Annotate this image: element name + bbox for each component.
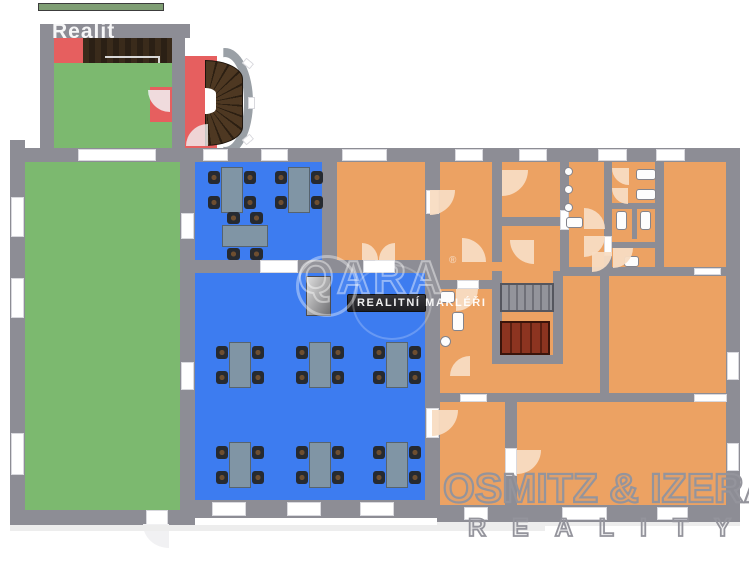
dining-table — [222, 212, 268, 260]
dining-table — [208, 167, 256, 213]
window — [519, 149, 547, 161]
window — [11, 278, 24, 318]
urinal — [564, 185, 573, 194]
urinal — [564, 203, 573, 212]
dining-table — [216, 342, 264, 388]
window — [657, 507, 688, 520]
hedge-strip — [38, 3, 164, 11]
interior-door — [505, 448, 517, 476]
window — [11, 197, 24, 237]
window — [727, 443, 739, 471]
interior-wall — [560, 267, 664, 276]
staircase-wood — [500, 321, 550, 355]
window — [342, 149, 387, 161]
window — [11, 433, 24, 475]
window — [464, 507, 488, 520]
window — [360, 502, 394, 516]
floorplan-canvas: Realit QARA ® REALITNÍ MAKLÉŘI OSMITZ & … — [0, 0, 749, 562]
interior-door — [181, 213, 194, 239]
window — [727, 352, 739, 380]
interior-wall — [492, 355, 563, 364]
toilet — [640, 211, 651, 230]
interior-opening — [694, 394, 727, 402]
terrace-wall-left — [40, 24, 54, 154]
dining-table — [296, 442, 344, 488]
interior-door — [260, 260, 298, 273]
wall-shadow — [437, 522, 740, 526]
window — [287, 502, 321, 516]
window — [78, 149, 156, 161]
window — [598, 149, 627, 161]
interior-door — [457, 280, 479, 289]
sink — [440, 336, 451, 347]
interior-wall — [600, 276, 609, 397]
toilet — [636, 189, 656, 200]
sink — [440, 291, 455, 303]
staircase-up — [500, 283, 554, 312]
spiral-core — [205, 88, 216, 114]
stall-divider — [632, 209, 637, 239]
terrace-wall-right — [172, 38, 185, 154]
dining-table — [296, 342, 344, 388]
room-green-hall — [25, 162, 180, 510]
window — [656, 149, 685, 161]
terrace-wall-top — [40, 24, 190, 38]
window — [261, 149, 288, 161]
dining-table — [373, 342, 421, 388]
dining-table — [373, 442, 421, 488]
qara-logo-circle — [296, 255, 358, 317]
tower-window — [248, 97, 255, 109]
urinal — [564, 167, 573, 176]
interior-wall — [655, 162, 664, 276]
interior-wall — [492, 217, 568, 226]
toilet — [566, 217, 583, 228]
toilet — [616, 211, 627, 230]
window — [203, 149, 228, 161]
interior-wall — [492, 162, 502, 262]
toilet — [636, 169, 656, 180]
window — [562, 507, 607, 520]
terrace-red-corner — [54, 38, 83, 63]
interior-door — [181, 362, 194, 390]
toilet — [452, 312, 464, 331]
window — [455, 149, 483, 161]
qara-logo-swirl — [352, 264, 432, 340]
right-wing-rooms — [440, 162, 726, 505]
exterior-door — [146, 510, 168, 525]
interior-opening — [694, 268, 721, 275]
wall-blue-orange — [322, 162, 337, 260]
room-orange-mid — [337, 162, 425, 260]
dining-table — [275, 167, 323, 213]
interior-opening — [460, 394, 487, 402]
window — [212, 502, 246, 516]
interior-wall — [553, 271, 563, 364]
dining-table — [216, 442, 264, 488]
